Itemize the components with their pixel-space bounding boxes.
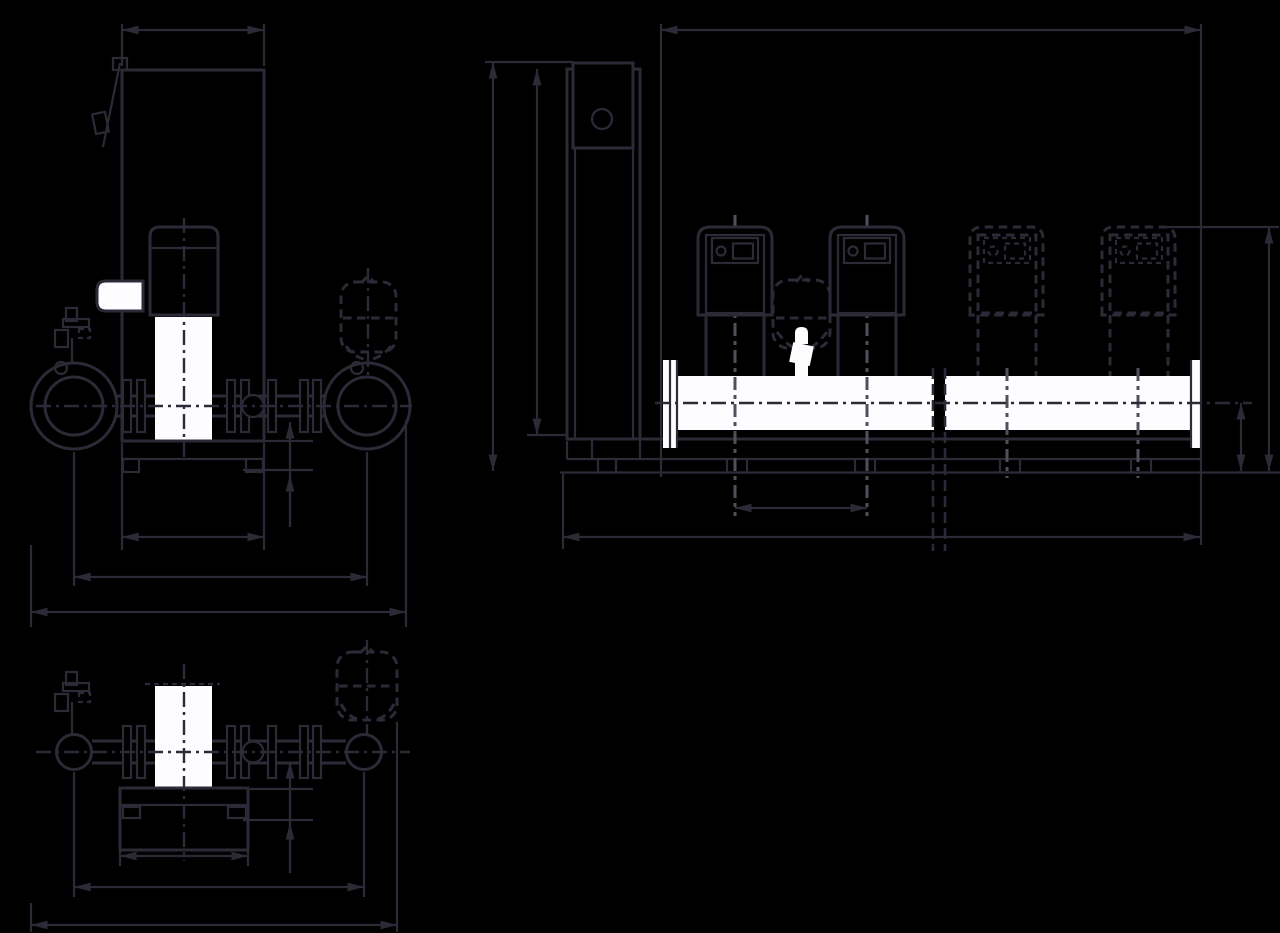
dimensional-drawing [0, 0, 1280, 933]
plan-view [31, 640, 410, 932]
pump-2 [830, 215, 904, 516]
base-frame [123, 441, 263, 472]
foot-pad [855, 459, 875, 473]
diaphragm-pressure-vessel [341, 268, 396, 378]
side-view-dimensions [31, 24, 406, 627]
motor-fan-cover [97, 281, 143, 311]
controller-box [573, 63, 633, 148]
plan-view-dimensions [31, 722, 397, 932]
foot-pad [1131, 459, 1151, 473]
cabinet-door-open [103, 63, 120, 147]
air-release-valve [55, 308, 90, 364]
foot-pad [1000, 459, 1020, 473]
foot-pad [123, 459, 139, 472]
motor [830, 227, 904, 315]
foot-pad [228, 807, 246, 818]
motor [698, 227, 772, 315]
motor-dashed [1102, 227, 1175, 315]
foot-pad [123, 807, 140, 818]
foot-pad [598, 459, 616, 473]
front-view [485, 24, 1280, 551]
foot-pad [727, 459, 747, 473]
motor-dashed [970, 227, 1043, 315]
air-release-valve [55, 672, 90, 735]
side-view [31, 24, 412, 627]
fill-valve [789, 327, 814, 376]
pump-1 [698, 215, 772, 516]
diaphragm-pressure-vessel [337, 640, 397, 734]
